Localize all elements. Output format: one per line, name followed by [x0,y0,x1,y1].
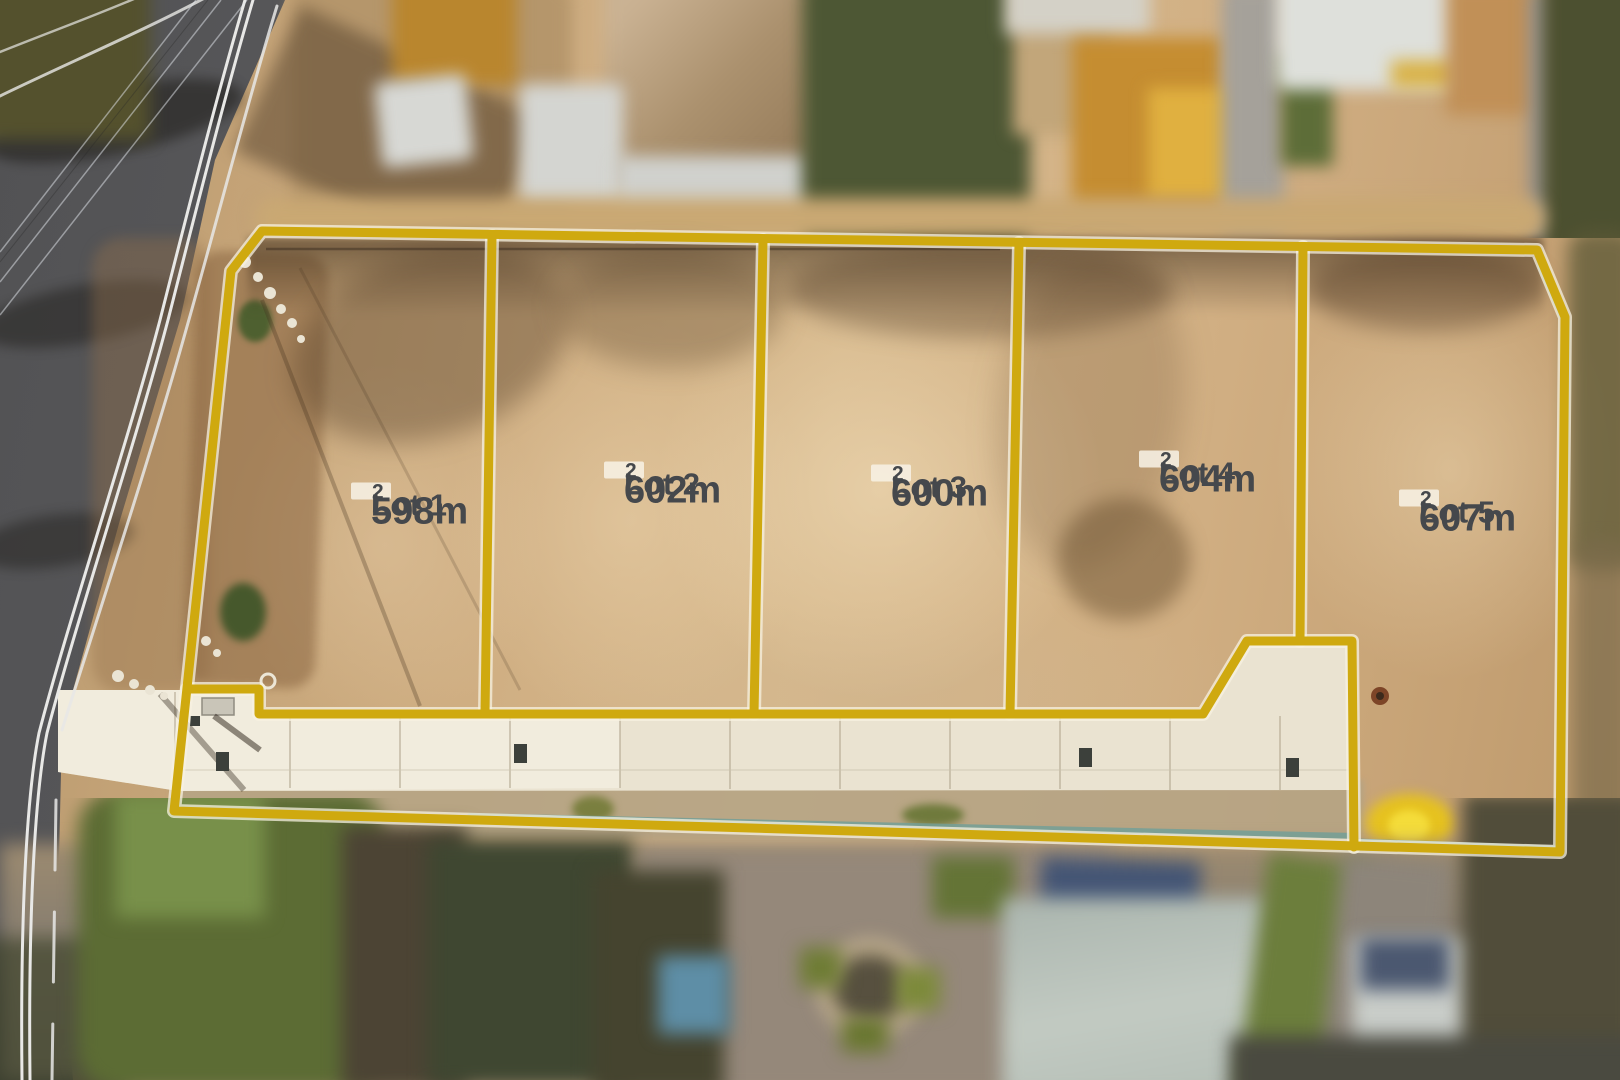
lot-boundary-overlay [0,0,1620,1080]
lot-divider-4 [1300,247,1303,641]
lot-label-card: Lot 4 604m2 [1139,451,1179,468]
square-superscript: 2 [1420,488,1432,510]
fire-pit [1371,687,1389,705]
lot-label-card: Lot 2 602m2 [604,462,644,479]
concrete-sunlit [58,690,620,791]
road-markings [0,0,277,1080]
lot-label-card: Lot 3 600m2 [871,465,911,482]
square-superscript: 2 [625,460,637,482]
lot-label-card: Lot 1 598m2 [351,483,391,500]
lot-label-card: Lot 5 607m2 [1399,490,1439,507]
square-superscript: 2 [1160,449,1172,471]
aerial-photo: Lot 1 598m2 Lot 2 602m2 Lot 3 600m2 Lot … [0,0,1620,1080]
square-superscript: 2 [892,463,904,485]
square-superscript: 2 [372,481,384,503]
